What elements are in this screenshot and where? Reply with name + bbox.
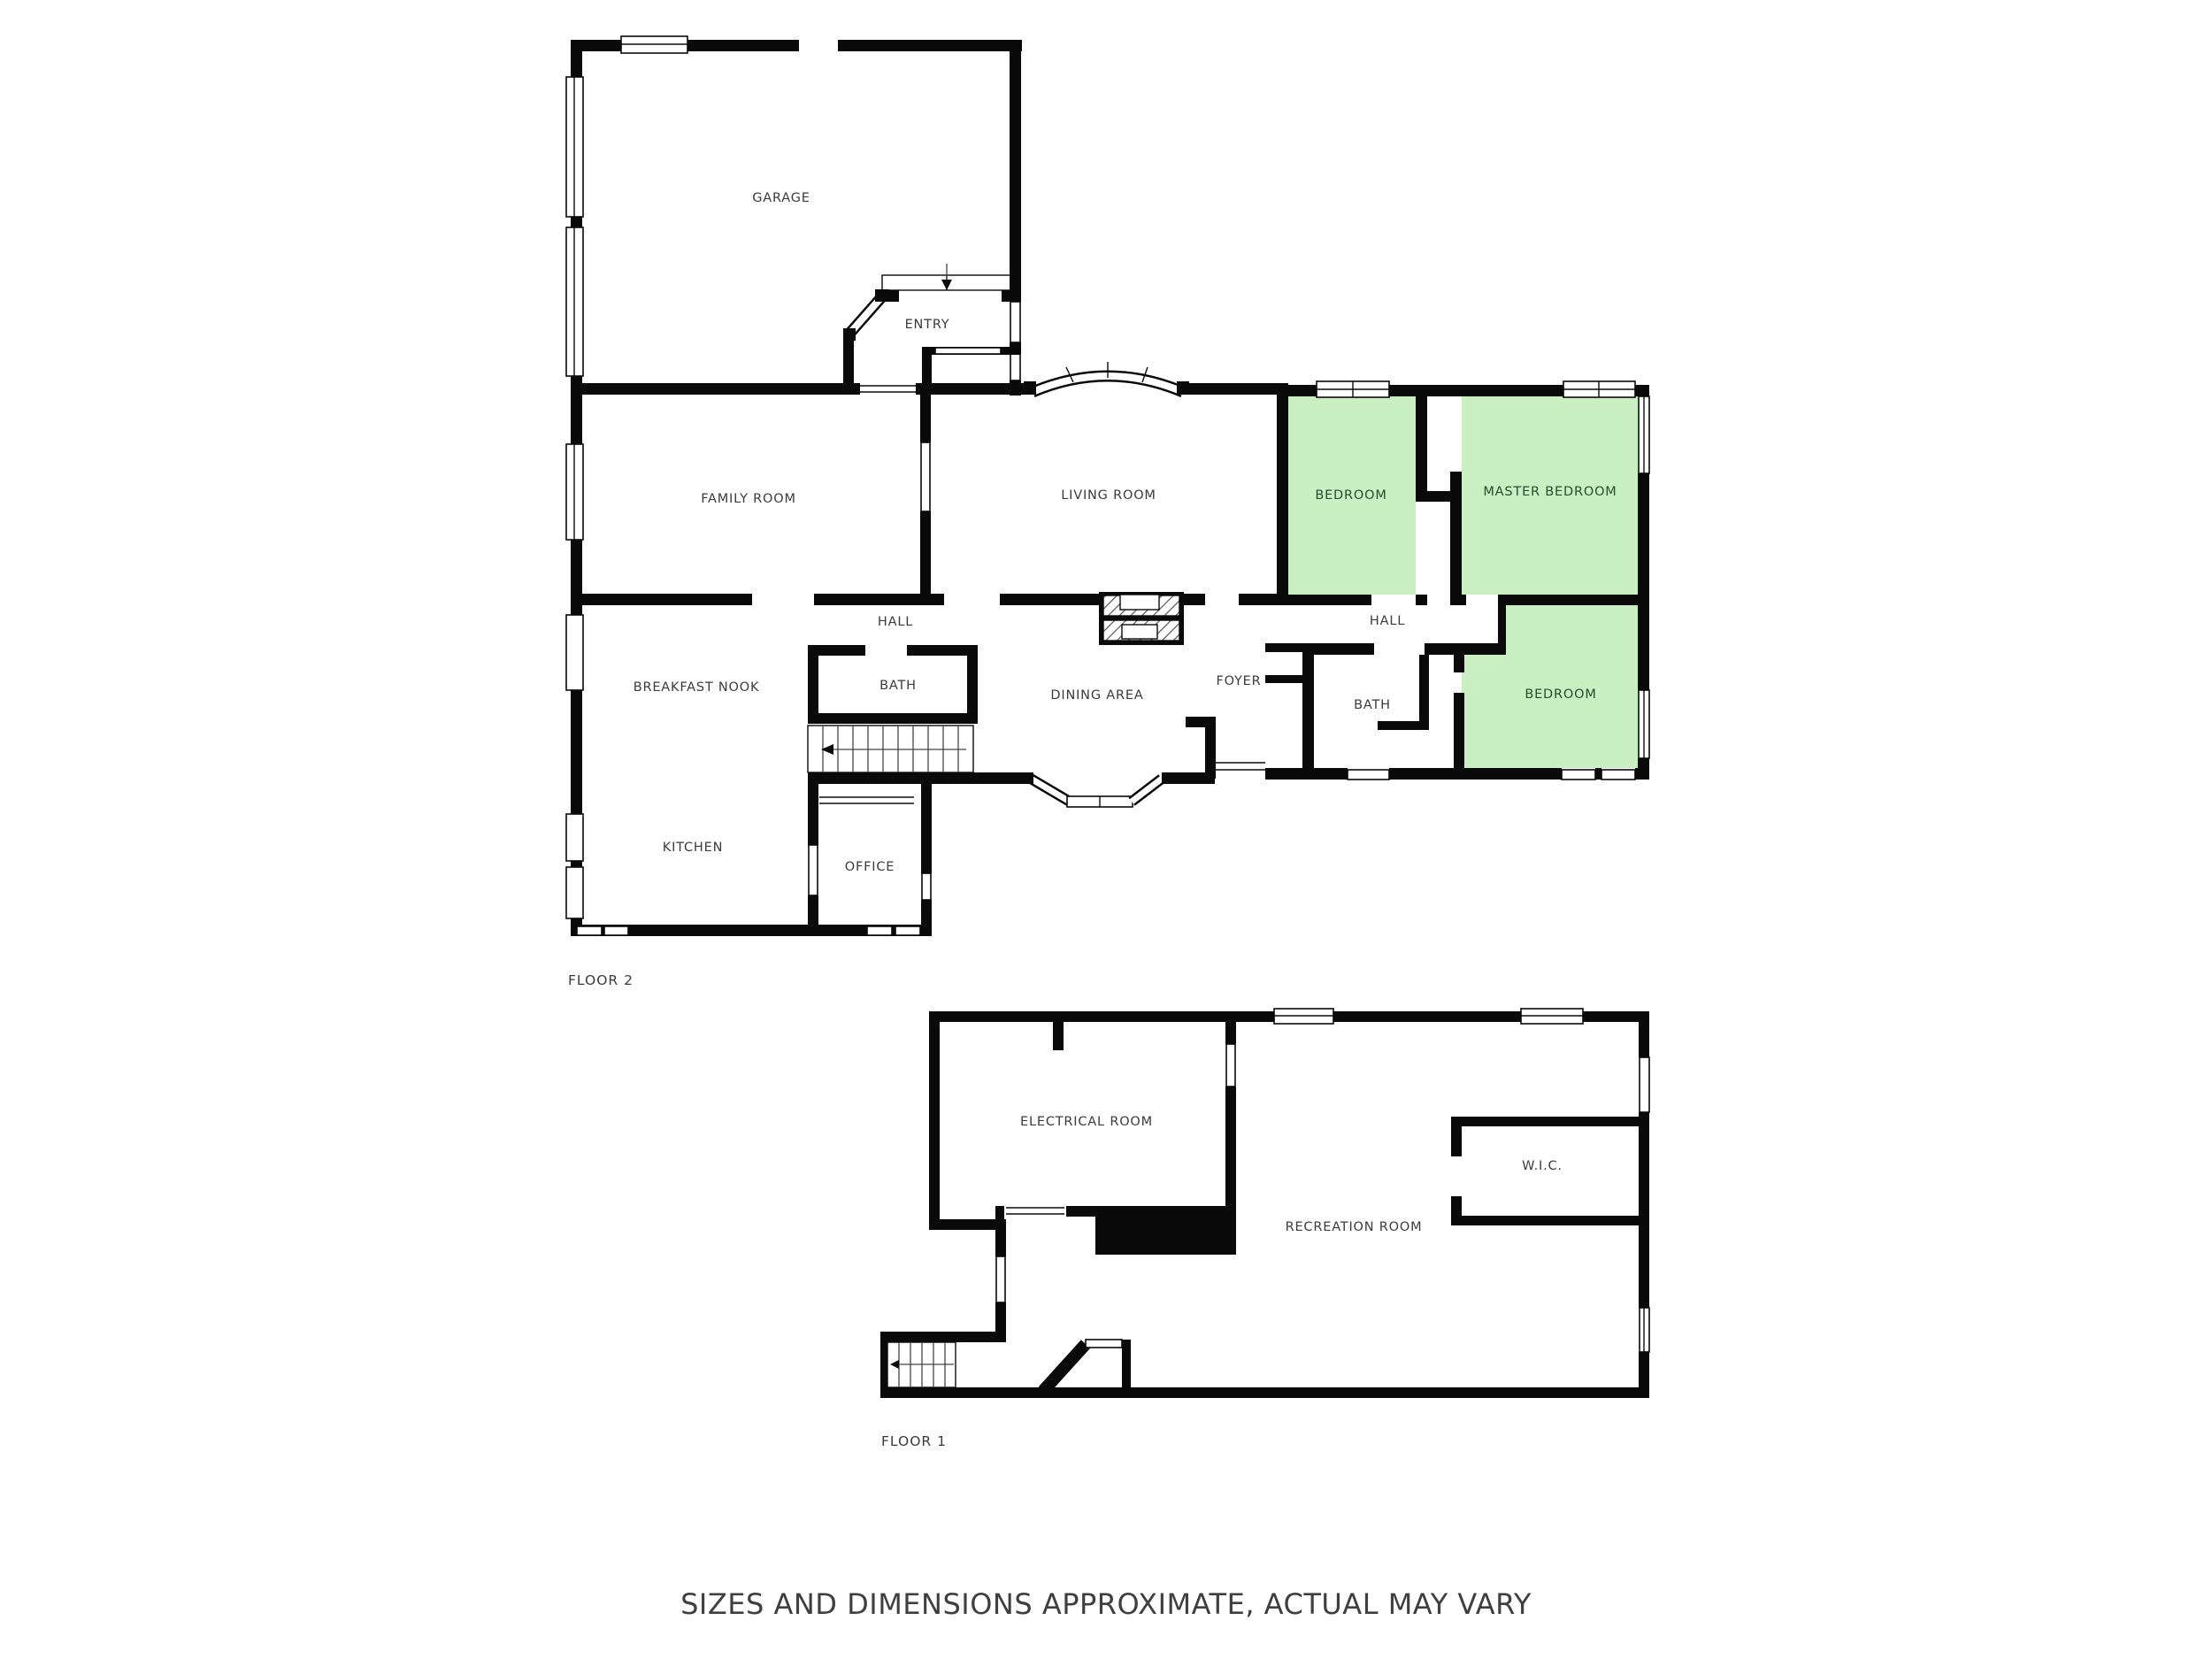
room-label-master-bedroom: MASTER BEDROOM xyxy=(1483,485,1617,499)
room-label-hall-right: HALL xyxy=(1370,614,1405,628)
room-label-living-room: LIVING ROOM xyxy=(1061,488,1156,503)
floor1-stairs xyxy=(887,1342,956,1387)
room-label-entry: ENTRY xyxy=(905,318,950,332)
room-label-family-room: FAMILY ROOM xyxy=(701,492,796,506)
room-label-dining-area: DINING AREA xyxy=(1050,688,1143,703)
west-wall xyxy=(566,396,583,936)
dining-bay-window xyxy=(1025,772,1215,807)
disclaimer-text: SIZES AND DIMENSIONS APPROXIMATE, ACTUAL… xyxy=(680,1587,1532,1621)
garage-walls xyxy=(566,36,1033,396)
living-bedroom-divider xyxy=(1277,396,1288,595)
floor2-plan: GARAGE ENTRY FAMILY ROOM LIVING ROOM BED… xyxy=(566,36,1649,988)
room-label-recreation-room: RECREATION ROOM xyxy=(1286,1220,1423,1234)
east-wall xyxy=(1638,396,1649,780)
foyer-walls xyxy=(1186,643,1314,779)
floor1-label: FLOOR 1 xyxy=(881,1433,947,1449)
bedroom-closets xyxy=(1416,396,1462,600)
room-label-hall-left: HALL xyxy=(878,615,913,629)
room-label-kitchen: KITCHEN xyxy=(663,841,723,855)
room-label-foyer: FOYER xyxy=(1216,674,1261,688)
floorplan-page: GARAGE ENTRY FAMILY ROOM LIVING ROOM BED… xyxy=(0,0,2212,1659)
room-label-electrical-room: ELECTRICAL ROOM xyxy=(1020,1115,1153,1129)
room-label-office: OFFICE xyxy=(845,860,895,874)
north-wall-bedrooms xyxy=(1183,381,1649,397)
room-label-bath-left: BATH xyxy=(879,679,917,693)
entry-stairs-down-arrow xyxy=(941,280,952,290)
floor1-stairs-arrow xyxy=(890,1360,899,1369)
room-label-breakfast-nook: BREAKFAST NOOK xyxy=(634,680,760,695)
floorplan-canvas: GARAGE ENTRY FAMILY ROOM LIVING ROOM BED… xyxy=(0,0,2212,1659)
room-label-bedroom-mid: BEDROOM xyxy=(1315,488,1386,503)
room-label-bedroom-right: BEDROOM xyxy=(1525,687,1596,702)
floor1-plan: ELECTRICAL ROOM RECREATION ROOM W.I.C. F… xyxy=(880,1009,1649,1449)
floor2-label: FLOOR 2 xyxy=(568,972,634,988)
floor1-walls xyxy=(880,1009,1649,1398)
dining-south-wall xyxy=(808,772,1031,784)
family-living-divider xyxy=(920,395,931,603)
south-wall-right-wing xyxy=(1265,768,1649,780)
room-label-garage: GARAGE xyxy=(752,191,810,205)
room-label-wic: W.I.C. xyxy=(1522,1159,1563,1173)
fireplace xyxy=(1099,592,1184,645)
floor2-stairs xyxy=(808,726,973,772)
living-room-arc-window xyxy=(1024,362,1189,395)
room-label-bath-right: BATH xyxy=(1354,698,1391,712)
